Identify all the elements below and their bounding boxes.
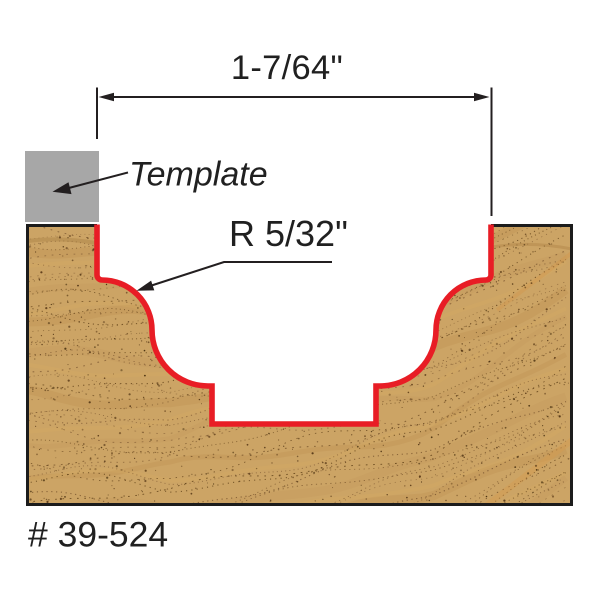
svg-text:R 5/32": R 5/32" [229,213,348,254]
svg-text:# 39-524: # 39-524 [28,515,168,555]
svg-text:1-7/64": 1-7/64" [231,49,343,87]
svg-text:Template: Template [129,156,268,194]
